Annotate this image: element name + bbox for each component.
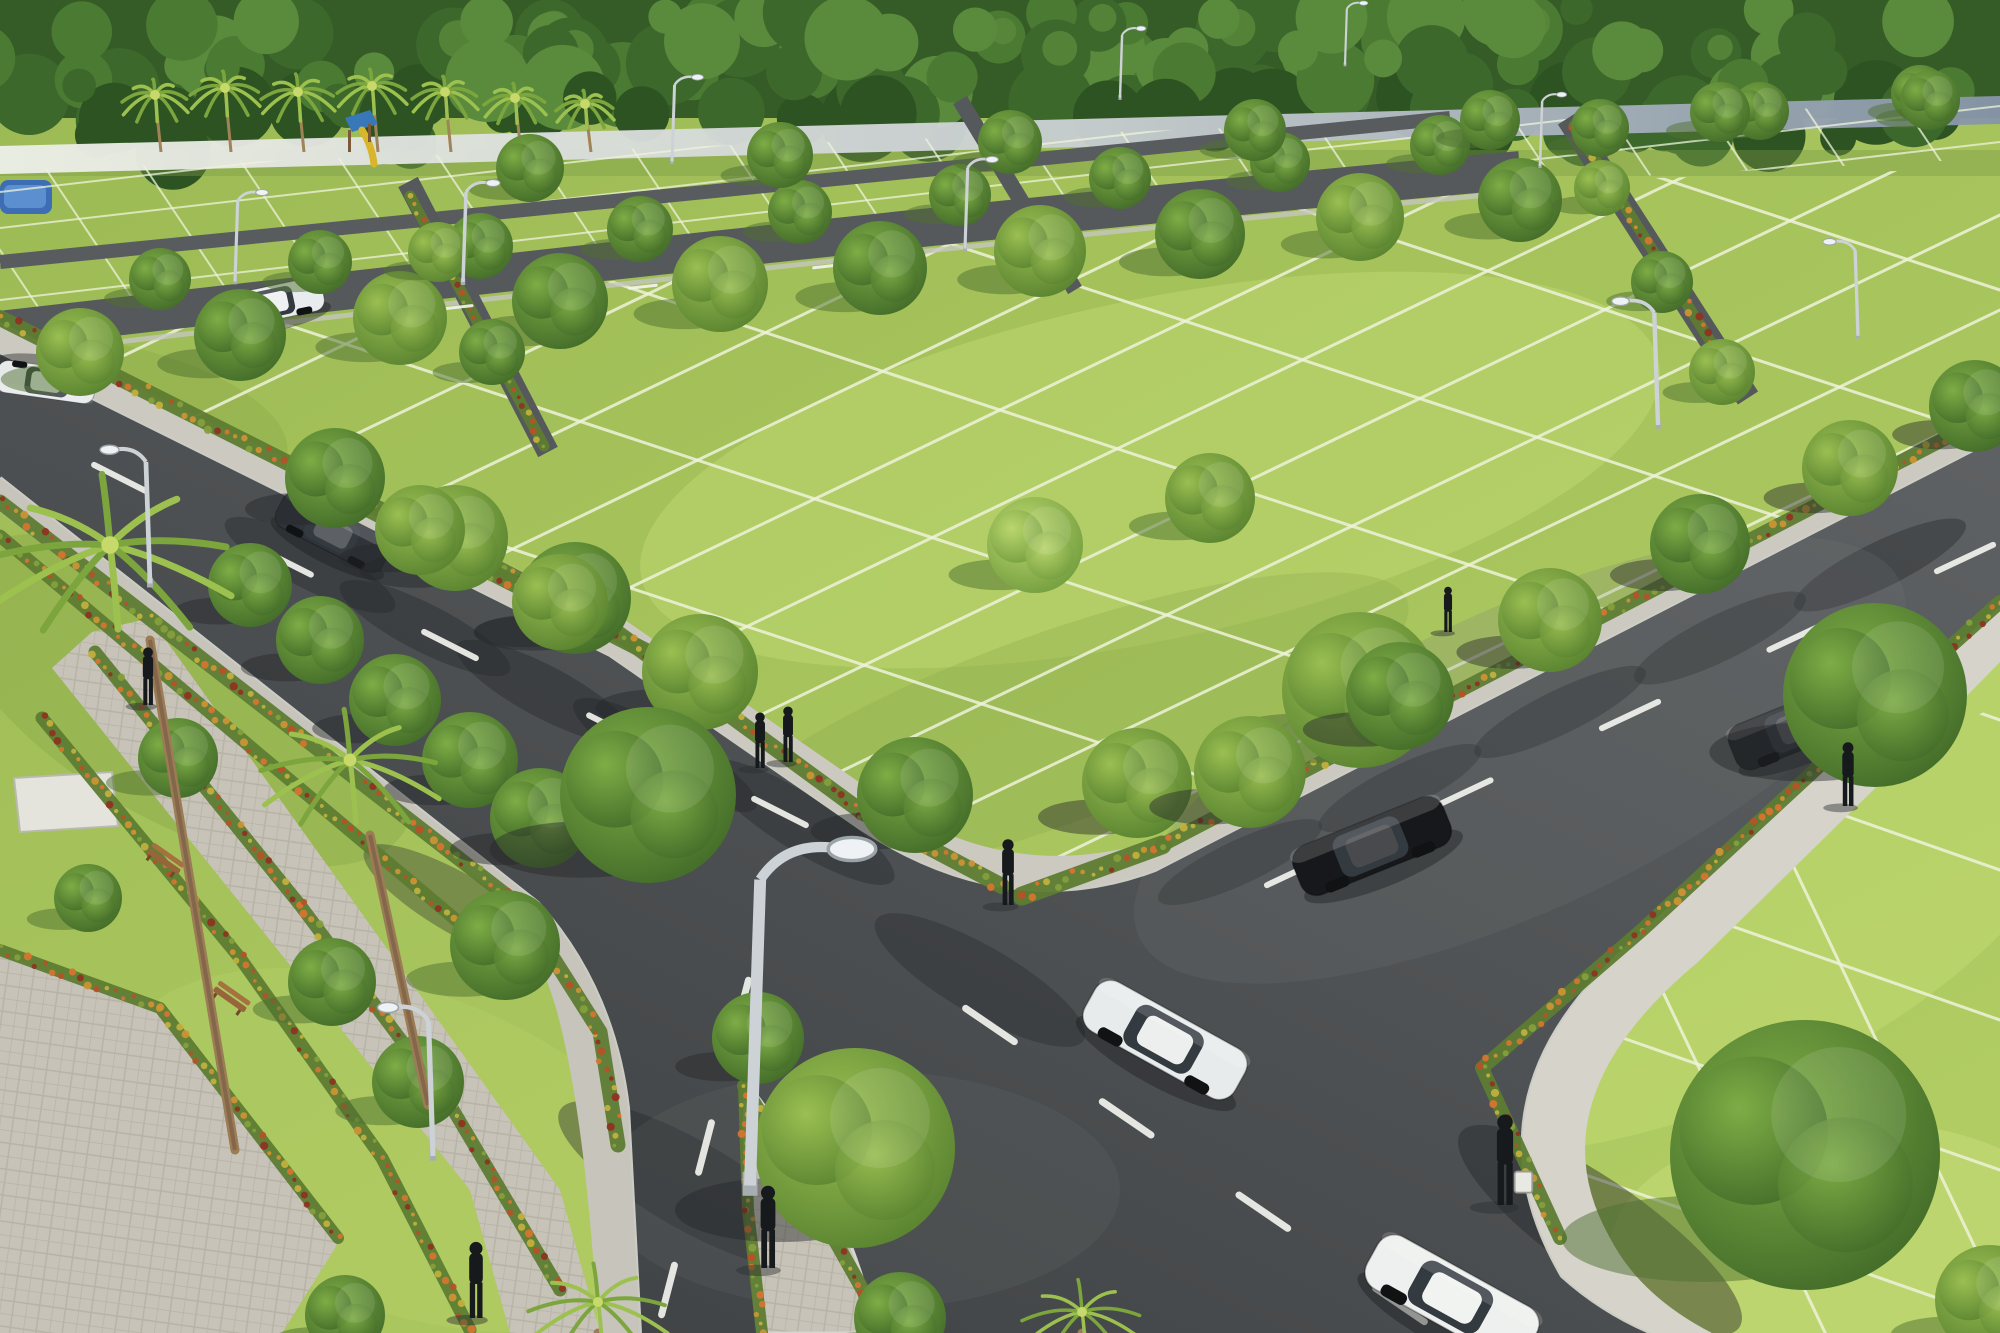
flower [1574, 978, 1580, 984]
flower [1526, 1157, 1532, 1163]
flower [1035, 882, 1039, 886]
flower [1476, 1062, 1483, 1069]
flower [429, 1252, 436, 1259]
flower [388, 1172, 393, 1177]
flower [285, 774, 290, 779]
flower [208, 707, 215, 714]
flower [260, 1142, 268, 1150]
flower [177, 401, 183, 407]
flower [756, 1291, 764, 1299]
flower [525, 1229, 533, 1237]
flower [132, 643, 137, 648]
flower [194, 657, 200, 663]
person-leg [1498, 1163, 1504, 1205]
flower [77, 974, 84, 981]
flower [413, 1222, 417, 1226]
flower [1766, 533, 1770, 537]
flower [1986, 614, 1991, 619]
forest-tree [1364, 39, 1402, 77]
flower [318, 1212, 326, 1220]
tree-highlight [522, 141, 556, 175]
flower [1109, 867, 1114, 872]
tree-highlight [792, 186, 824, 218]
flower [1989, 604, 1994, 609]
tree-highlight [1593, 105, 1622, 134]
flower [944, 850, 949, 855]
flower [738, 1130, 746, 1138]
tree-highlight [1838, 430, 1886, 478]
person-leg [1849, 776, 1853, 806]
flower [342, 1094, 346, 1098]
flower [225, 811, 229, 815]
flower [105, 986, 110, 991]
lamp-head [1823, 239, 1836, 245]
flower [248, 691, 254, 697]
flower [415, 825, 423, 833]
flower [958, 859, 965, 866]
flower [114, 809, 118, 813]
tree-highlight [1199, 462, 1244, 507]
flower [530, 427, 537, 434]
flower [167, 631, 175, 639]
flower [580, 1005, 588, 1013]
flower [541, 1253, 548, 1260]
tree-highlight [626, 725, 714, 813]
flower [54, 737, 62, 745]
tree-highlight [548, 263, 596, 311]
tree-highlight [229, 298, 275, 344]
flower [1555, 999, 1562, 1006]
person-leg [1506, 1163, 1512, 1205]
lamp-head [1136, 26, 1146, 31]
tree-highlight [309, 605, 353, 649]
flower [612, 1093, 620, 1101]
flower [387, 808, 391, 812]
flower [192, 1058, 198, 1064]
flower [604, 1105, 610, 1111]
flower [252, 1129, 256, 1133]
flower [24, 952, 32, 960]
flower [1491, 1089, 1499, 1097]
forest-tree [861, 14, 919, 72]
flower [631, 635, 638, 642]
flower [253, 699, 259, 705]
flower [1482, 1055, 1489, 1062]
flower [246, 749, 251, 754]
flower [332, 816, 337, 821]
flower [1541, 1212, 1547, 1218]
flower [455, 1114, 459, 1118]
lamp-head [1557, 92, 1567, 97]
tree-highlight [548, 564, 596, 612]
flower [23, 523, 31, 531]
flower [1645, 920, 1651, 926]
flower [1467, 685, 1471, 689]
flower [42, 712, 49, 719]
flower [316, 920, 324, 928]
flower [101, 622, 107, 628]
tree-highlight [1029, 214, 1075, 260]
flower [1980, 621, 1986, 627]
flower [517, 395, 521, 399]
person-torso [143, 656, 153, 680]
flower [225, 430, 230, 435]
flower [361, 1135, 367, 1141]
flower [209, 1069, 214, 1074]
flower [1529, 1024, 1537, 1032]
flower [1516, 1132, 1520, 1136]
flower [1062, 876, 1069, 883]
flower [1124, 854, 1131, 861]
person-leg [477, 1282, 482, 1318]
flower [1506, 1040, 1512, 1046]
flower [259, 1132, 266, 1139]
flower [131, 389, 138, 396]
flower [47, 720, 54, 727]
flower [1517, 1038, 1523, 1044]
flower [238, 821, 245, 828]
tree-highlight [323, 438, 373, 488]
flower [373, 1139, 377, 1143]
flower [527, 1239, 535, 1247]
flower [62, 586, 66, 590]
tree-highlight [632, 203, 665, 236]
flower [314, 1056, 320, 1062]
lamp-head [828, 837, 876, 860]
flower [636, 646, 642, 652]
flower [1701, 872, 1709, 880]
flower [1582, 973, 1589, 980]
flower [282, 878, 289, 885]
flower [459, 862, 463, 866]
tree-highlight [1714, 346, 1747, 379]
flower [84, 982, 92, 990]
flower [1641, 929, 1646, 934]
flower [211, 665, 217, 671]
tree-highlight [80, 871, 114, 905]
flower [1749, 830, 1754, 835]
flower [262, 705, 266, 709]
flower [1966, 634, 1971, 639]
flower [77, 594, 83, 600]
flower [69, 968, 76, 975]
tree-highlight [1349, 182, 1393, 226]
flower [216, 794, 221, 799]
flower [240, 1112, 247, 1119]
flower [1605, 958, 1610, 963]
flower [287, 1168, 294, 1175]
flower [478, 865, 484, 871]
flower [450, 1283, 457, 1290]
flower [747, 1253, 755, 1261]
flower [796, 758, 801, 763]
flower [226, 820, 232, 826]
flower [1175, 834, 1181, 840]
flower [107, 580, 111, 584]
flower [1534, 1194, 1540, 1200]
flower [840, 1260, 845, 1265]
flower [748, 1244, 756, 1252]
tree-highlight [686, 626, 744, 684]
flower [182, 1030, 190, 1038]
person-torso [761, 1198, 776, 1232]
flower [235, 1106, 240, 1111]
flower [241, 952, 247, 958]
tree-highlight [1713, 88, 1743, 118]
flower [285, 890, 290, 895]
flower [6, 954, 10, 958]
flower [281, 457, 288, 464]
flower [742, 1084, 746, 1088]
flower [347, 825, 354, 832]
flower [467, 1325, 475, 1333]
tree-highlight [491, 901, 546, 956]
tree-highlight [1595, 166, 1623, 194]
flower [1490, 1081, 1495, 1086]
person-leg [143, 678, 147, 705]
flower [6, 538, 11, 543]
flower [396, 1033, 401, 1038]
flower [1191, 824, 1196, 829]
flower [1607, 947, 1613, 953]
flower [5, 505, 9, 509]
flower [32, 964, 37, 969]
flower [482, 1151, 486, 1155]
flower [1546, 1220, 1551, 1225]
lamp-head [1359, 1, 1368, 5]
flower [1785, 788, 1792, 795]
person-torso [1444, 593, 1452, 611]
flower [807, 772, 815, 780]
flower [129, 608, 136, 615]
flower [416, 1230, 420, 1234]
flower [85, 773, 90, 778]
flower [360, 840, 364, 844]
flower [1758, 813, 1765, 820]
flower [1080, 870, 1085, 875]
playground-post [368, 124, 371, 142]
flower [526, 409, 532, 415]
tree-highlight [69, 317, 113, 361]
person-leg [149, 678, 153, 705]
flower [392, 1190, 397, 1195]
flower [148, 397, 155, 404]
flower [217, 805, 222, 810]
flower [848, 1267, 852, 1271]
tree-highlight [1189, 198, 1234, 243]
person-leg [470, 1282, 475, 1318]
flower [116, 635, 120, 639]
flower [1546, 1003, 1554, 1011]
flower [1966, 619, 1972, 625]
person-torso [1002, 849, 1014, 876]
flower [72, 562, 79, 569]
flower [88, 651, 96, 659]
flower [268, 710, 273, 715]
flower [1483, 1064, 1487, 1068]
flower [103, 665, 107, 669]
flower [105, 790, 112, 797]
person-leg [1449, 611, 1452, 632]
flower [308, 916, 314, 922]
flower [831, 787, 837, 793]
flower [1704, 329, 1712, 337]
flower [304, 793, 309, 798]
flower [89, 572, 95, 578]
flower [471, 1136, 475, 1140]
flower [1165, 834, 1171, 840]
flower [1099, 866, 1103, 870]
flower [750, 729, 756, 735]
flower [1539, 1202, 1545, 1208]
flower [410, 820, 416, 826]
tree-highlight [1688, 504, 1738, 554]
flower [254, 755, 258, 759]
palm-crown-center [593, 1297, 603, 1307]
flower [987, 883, 995, 891]
flower [511, 387, 516, 392]
flower [185, 642, 190, 647]
flower [544, 1274, 549, 1279]
palm-crown-center [440, 87, 450, 97]
flower [85, 612, 92, 619]
flower [1180, 824, 1188, 832]
flower [1481, 674, 1488, 681]
flower [212, 930, 216, 934]
flower [300, 740, 307, 747]
flower [230, 682, 238, 690]
tree-highlight [431, 228, 461, 258]
flower [1769, 520, 1777, 528]
palm-crown-center [1077, 1307, 1087, 1317]
flower [759, 1322, 763, 1326]
flower [1494, 1054, 1498, 1058]
flower [194, 698, 198, 702]
tree-highlight [321, 947, 365, 991]
flower [304, 1202, 310, 1208]
flower [435, 905, 442, 912]
flower [435, 1270, 442, 1277]
flower [207, 918, 215, 926]
flower [184, 692, 192, 700]
flower [156, 1005, 163, 1012]
flower [496, 578, 502, 584]
flower [596, 1058, 602, 1064]
tree-highlight [1387, 653, 1441, 707]
flower [844, 801, 848, 805]
flower [507, 1209, 513, 1215]
flower [81, 601, 89, 609]
tree-highlight [772, 129, 805, 162]
lamp-head [692, 74, 704, 80]
flower [593, 1031, 597, 1035]
flower [518, 1213, 525, 1220]
flower [430, 836, 438, 844]
flower [1495, 1110, 1500, 1115]
flower [190, 416, 196, 422]
person-leg [761, 742, 765, 768]
flower [1553, 1227, 1559, 1233]
flower [428, 901, 433, 906]
flower [1765, 807, 1773, 815]
palm-crown-center [220, 83, 230, 93]
tree-highlight [1112, 153, 1143, 184]
flower [253, 979, 257, 983]
tree-highlight [240, 551, 282, 593]
flower [354, 1127, 362, 1135]
flower [153, 860, 157, 864]
lamp-head [256, 189, 269, 195]
flower [212, 717, 219, 724]
tree-highlight [1654, 257, 1685, 288]
flower [459, 289, 466, 296]
tree-highlight [868, 230, 915, 277]
flower [491, 1176, 497, 1182]
flower [824, 779, 832, 787]
forest-tree-highlight [1042, 31, 1077, 66]
flower [612, 1133, 618, 1139]
flower [1687, 299, 1692, 304]
tree-highlight [1771, 1047, 1906, 1182]
flower [257, 986, 262, 991]
tree-highlight [889, 1281, 935, 1327]
flower [183, 1043, 189, 1049]
flower [530, 418, 536, 424]
tree-highlight [901, 749, 959, 807]
flower [137, 613, 143, 619]
flower [227, 673, 234, 680]
flower [609, 1076, 614, 1081]
flower [144, 712, 150, 718]
tree-highlight [1483, 96, 1513, 126]
flower [1716, 848, 1724, 856]
flower [121, 642, 126, 647]
person-leg [769, 1230, 775, 1268]
flower [148, 1001, 154, 1007]
flower [403, 875, 407, 879]
flower [612, 1085, 617, 1090]
flower [951, 853, 958, 860]
flower [114, 988, 118, 992]
flower [58, 973, 64, 979]
forest-tree-highlight [1089, 4, 1117, 32]
flower [385, 1015, 393, 1023]
playground-post [348, 130, 351, 152]
flower [237, 729, 243, 735]
flower [211, 1078, 217, 1084]
flower [485, 1159, 490, 1164]
flower [1043, 878, 1050, 885]
palm-crown-center [344, 754, 357, 767]
flower [389, 1026, 395, 1032]
flower [838, 791, 845, 798]
flower [1678, 888, 1686, 896]
flower [49, 970, 56, 977]
flower [202, 914, 206, 918]
lamp-head [100, 445, 119, 454]
flower [1638, 233, 1642, 237]
flower [338, 1234, 343, 1239]
flower [165, 1022, 171, 1028]
flower [242, 962, 249, 969]
flower [246, 446, 253, 453]
flower [267, 1151, 271, 1155]
flower [420, 1239, 424, 1243]
flower [437, 843, 445, 851]
flower [118, 674, 125, 681]
flower [314, 933, 321, 940]
flower [108, 672, 112, 676]
